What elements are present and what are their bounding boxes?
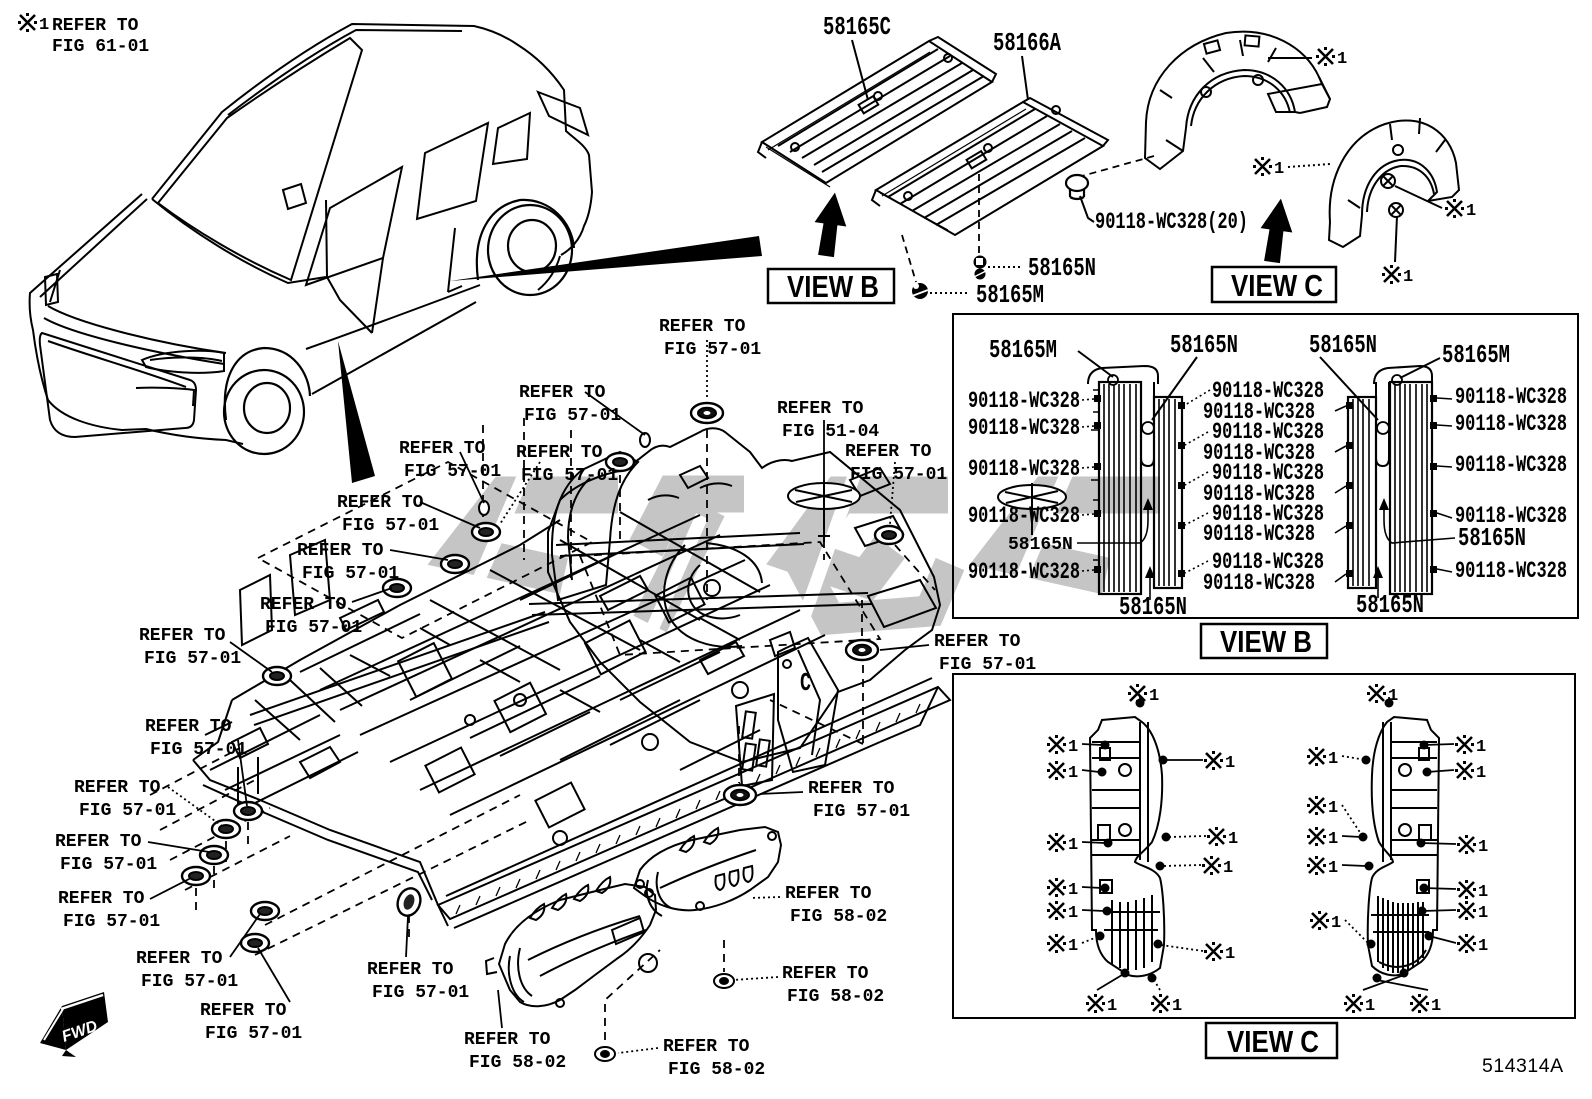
svg-text:58165M: 58165M bbox=[1442, 340, 1510, 370]
svg-text:FIG 51-04: FIG 51-04 bbox=[782, 422, 879, 442]
svg-text:FIG 58-02: FIG 58-02 bbox=[668, 1060, 765, 1080]
svg-text:REFER TO: REFER TO bbox=[58, 889, 145, 909]
svg-text:FIG 57-01: FIG 57-01 bbox=[404, 462, 501, 482]
svg-text:REFER TO: REFER TO bbox=[519, 383, 606, 403]
svg-text:FIG 57-01: FIG 57-01 bbox=[205, 1024, 302, 1044]
svg-text:REFER TO: REFER TO bbox=[260, 595, 347, 615]
svg-text:FIG 57-01: FIG 57-01 bbox=[521, 466, 618, 486]
svg-text:58165N: 58165N bbox=[1170, 330, 1238, 360]
svg-text:REFER TO: REFER TO bbox=[516, 443, 603, 463]
svg-text:REFER TO: REFER TO bbox=[136, 949, 223, 969]
svg-text:FIG 57-01: FIG 57-01 bbox=[141, 972, 238, 992]
svg-text:FIG 58-02: FIG 58-02 bbox=[787, 987, 884, 1007]
svg-text:FIG 57-01: FIG 57-01 bbox=[939, 655, 1036, 675]
svg-text:REFER TO: REFER TO bbox=[464, 1030, 551, 1050]
svg-text:FIG 57-01: FIG 57-01 bbox=[150, 740, 247, 760]
svg-text:FIG 61-01: FIG 61-01 bbox=[52, 37, 149, 57]
svg-text:REFER TO: REFER TO bbox=[399, 439, 486, 459]
svg-text:REFER TO: REFER TO bbox=[782, 964, 869, 984]
svg-text:REFER TO: REFER TO bbox=[337, 493, 424, 513]
svg-text:FIG 57-01: FIG 57-01 bbox=[60, 855, 157, 875]
svg-text:REFER TO: REFER TO bbox=[55, 832, 142, 852]
svg-text:REFER TO: REFER TO bbox=[659, 317, 746, 337]
svg-text:REFER TO: REFER TO bbox=[777, 399, 864, 419]
svg-text:90118-WC328: 90118-WC328 bbox=[1203, 570, 1315, 596]
svg-text:VIEW B: VIEW B bbox=[1220, 624, 1312, 659]
svg-text:FIG 57-01: FIG 57-01 bbox=[79, 801, 176, 821]
svg-text:VIEW C: VIEW C bbox=[1227, 1024, 1319, 1059]
svg-text:58165N: 58165N bbox=[1119, 592, 1187, 622]
svg-text:FIG 57-01: FIG 57-01 bbox=[372, 983, 469, 1003]
svg-text:REFER TO: REFER TO bbox=[663, 1037, 750, 1057]
svg-text:REFER TO: REFER TO bbox=[845, 442, 932, 462]
svg-text:90118-WC328: 90118-WC328 bbox=[1455, 452, 1567, 478]
svg-text:REFER TO: REFER TO bbox=[808, 779, 895, 799]
svg-text:FIG 57-01: FIG 57-01 bbox=[813, 802, 910, 822]
svg-text:58165N: 58165N bbox=[1356, 590, 1424, 620]
svg-text:90118-WC328(20): 90118-WC328(20) bbox=[1095, 209, 1248, 235]
svg-text:58165M: 58165M bbox=[989, 335, 1057, 365]
svg-text:90118-WC328: 90118-WC328 bbox=[968, 559, 1080, 585]
svg-text:90118-WC328: 90118-WC328 bbox=[1455, 384, 1567, 410]
svg-text:58165M: 58165M bbox=[976, 280, 1044, 310]
svg-text:FIG 58-02: FIG 58-02 bbox=[469, 1053, 566, 1073]
svg-text:REFER TO: REFER TO bbox=[785, 884, 872, 904]
svg-text:REFER TO: REFER TO bbox=[74, 778, 161, 798]
svg-text:90118-WC328: 90118-WC328 bbox=[968, 456, 1080, 482]
svg-text:58165C: 58165C bbox=[823, 12, 891, 42]
svg-text:90118-WC328: 90118-WC328 bbox=[1455, 411, 1567, 437]
svg-text:VIEW C: VIEW C bbox=[1231, 268, 1323, 303]
svg-text:FIG 57-01: FIG 57-01 bbox=[63, 912, 160, 932]
svg-text:58165N: 58165N bbox=[1309, 330, 1377, 360]
svg-text:REFER TO: REFER TO bbox=[367, 960, 454, 980]
svg-text:REFER TO: REFER TO bbox=[139, 626, 226, 646]
svg-text:514314A: 514314A bbox=[1482, 1055, 1564, 1077]
svg-text:FIG 57-01: FIG 57-01 bbox=[144, 649, 241, 669]
svg-text:90118-WC328: 90118-WC328 bbox=[968, 503, 1080, 529]
svg-text:90118-WC328: 90118-WC328 bbox=[968, 415, 1080, 441]
svg-text:REFER TO: REFER TO bbox=[52, 16, 139, 36]
svg-text:58165N: 58165N bbox=[1458, 523, 1526, 553]
svg-text:REFER TO: REFER TO bbox=[145, 717, 232, 737]
svg-text:C: C bbox=[800, 668, 811, 698]
svg-text:FIG 57-01: FIG 57-01 bbox=[850, 465, 947, 485]
svg-text:58165N: 58165N bbox=[1008, 535, 1073, 555]
svg-text:VIEW B: VIEW B bbox=[787, 269, 879, 304]
svg-text:58166A: 58166A bbox=[993, 28, 1061, 58]
svg-text:REFER TO: REFER TO bbox=[200, 1001, 287, 1021]
svg-text:FIG 58-02: FIG 58-02 bbox=[790, 907, 887, 927]
svg-text:REFER TO: REFER TO bbox=[934, 632, 1021, 652]
svg-text:FIG 57-01: FIG 57-01 bbox=[342, 516, 439, 536]
svg-text:FIG 57-01: FIG 57-01 bbox=[302, 564, 399, 584]
svg-text:FIG 57-01: FIG 57-01 bbox=[664, 340, 761, 360]
svg-text:FIG 57-01: FIG 57-01 bbox=[524, 406, 621, 426]
svg-text:58165N: 58165N bbox=[1028, 253, 1096, 283]
svg-text:REFER TO: REFER TO bbox=[297, 541, 384, 561]
svg-text:90118-WC328: 90118-WC328 bbox=[1455, 558, 1567, 584]
svg-text:FIG 57-01: FIG 57-01 bbox=[265, 618, 362, 638]
svg-text:90118-WC328: 90118-WC328 bbox=[968, 388, 1080, 414]
svg-text:90118-WC328: 90118-WC328 bbox=[1203, 521, 1315, 547]
